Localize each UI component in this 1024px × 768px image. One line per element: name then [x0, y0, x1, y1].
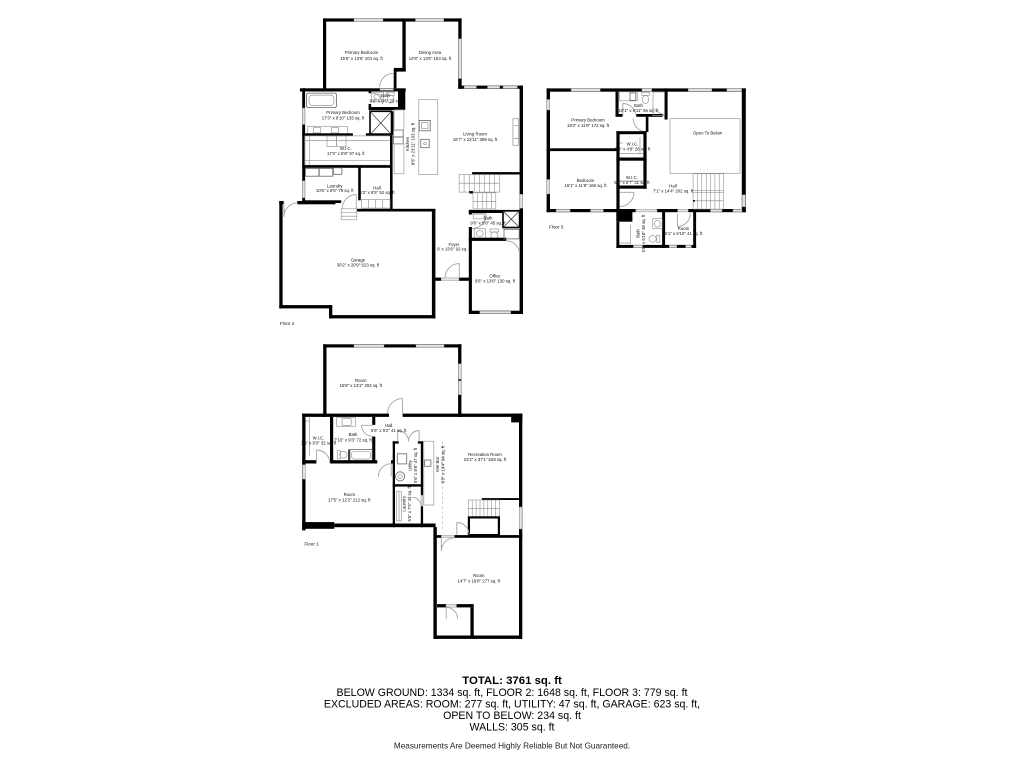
- svg-text:Primary Bedroom: Primary Bedroom: [326, 110, 360, 115]
- svg-text:17'5" x 12'2" 212 sq. ft: 17'5" x 12'2" 212 sq. ft: [328, 497, 371, 502]
- svg-text:9'6" x 13'6" 130 sq. ft: 9'6" x 13'6" 130 sq. ft: [475, 279, 516, 284]
- svg-text:9' x 13'6" 92 sq. ft: 9' x 13'6" 92 sq. ft: [437, 246, 472, 251]
- svg-text:Bath: Bath: [381, 93, 390, 98]
- svg-text:5'6" x 6'10" 38 sq. ft: 5'6" x 6'10" 38 sq. ft: [641, 214, 646, 252]
- svg-text:16'7" x 23'11" 399 sq. ft: 16'7" x 23'11" 399 sq. ft: [453, 137, 498, 142]
- svg-text:15'5" x 13'6" 201 sq. ft: 15'5" x 13'6" 201 sq. ft: [340, 56, 383, 61]
- svg-text:Wet Bar: Wet Bar: [435, 456, 440, 472]
- svg-text:WALLS: 305 sq. ft: WALLS: 305 sq. ft: [470, 721, 555, 733]
- svg-text:Primary Bedroom: Primary Bedroom: [345, 50, 379, 55]
- svg-text:7'10" x 9'3" 72 sq. ft: 7'10" x 9'3" 72 sq. ft: [334, 437, 372, 442]
- svg-text:Floor 1: Floor 1: [304, 541, 319, 546]
- svg-text:19'3" x 11'9" 172 sq. ft: 19'3" x 11'9" 172 sq. ft: [567, 123, 610, 128]
- svg-text:Laundry: Laundry: [401, 495, 406, 511]
- svg-text:Kitchen: Kitchen: [405, 136, 410, 151]
- svg-text:BELOW GROUND: 1334 sq. ft, FLO: BELOW GROUND: 1334 sq. ft, FLOOR 2: 1648…: [337, 687, 688, 699]
- svg-text:23'2" x 37'1" 528 sq. ft: 23'2" x 37'1" 528 sq. ft: [464, 457, 507, 462]
- svg-text:5'6" x 4'9" 26 sq. ft: 5'6" x 4'9" 26 sq. ft: [615, 146, 651, 151]
- svg-text:16'1" x 11'8" 166 sq. ft: 16'1" x 11'8" 166 sq. ft: [564, 183, 607, 188]
- svg-text:15'8" x 13'2" 203 sq. ft: 15'8" x 13'2" 203 sq. ft: [340, 383, 383, 388]
- svg-text:17'3" x 5'8" 97 sq. ft: 17'3" x 5'8" 97 sq. ft: [327, 151, 365, 156]
- svg-text:TOTAL: 3761 sq. ft: TOTAL: 3761 sq. ft: [462, 675, 562, 687]
- svg-text:Floor 2: Floor 2: [280, 321, 295, 326]
- svg-text:5'6" x 5'7" 31 sq. ft: 5'6" x 5'7" 31 sq. ft: [614, 180, 650, 185]
- svg-text:Floor 3: Floor 3: [549, 224, 564, 229]
- svg-text:OPEN TO BELOW: 234 sq. ft: OPEN TO BELOW: 234 sq. ft: [443, 710, 581, 722]
- svg-text:EXCLUDED AREAS: ROOM: 277 sq.: EXCLUDED AREAS: ROOM: 277 sq. ft, UTILIT…: [324, 698, 700, 710]
- svg-text:3'5" x 9'3" 32 sq. ft: 3'5" x 9'3" 32 sq. ft: [301, 440, 337, 445]
- svg-text:Open To Below: Open To Below: [693, 131, 723, 136]
- svg-text:Living Room: Living Room: [463, 132, 487, 137]
- svg-text:6'1" x 6'10" 41 sq. ft: 6'1" x 6'10" 41 sq. ft: [665, 231, 703, 236]
- svg-text:14'7" x 19'8" 277 sq. ft: 14'7" x 19'8" 277 sq. ft: [457, 578, 500, 583]
- svg-text:Bath: Bath: [636, 228, 641, 237]
- svg-text:6'2" x 8'5" 52 sq. ft: 6'2" x 8'5" 52 sq. ft: [359, 190, 395, 195]
- svg-text:6'5" x 13'4" 64 sq. ft: 6'5" x 13'4" 64 sq. ft: [440, 445, 445, 483]
- svg-text:5'6" x 8'6" 47 sq. ft: 5'6" x 8'6" 47 sq. ft: [413, 447, 418, 483]
- svg-text:Utility: Utility: [407, 459, 412, 470]
- svg-text:5'6" x 9'2" 41 sq. ft: 5'6" x 9'2" 41 sq. ft: [371, 428, 407, 433]
- svg-text:17'3" x 8'10" 135 sq. ft: 17'3" x 8'10" 135 sq. ft: [322, 116, 365, 121]
- svg-text:30'2" x 20'9" 623 sq. ft: 30'2" x 20'9" 623 sq. ft: [337, 263, 380, 268]
- svg-text:8'6" x 23'11" 193 sq. ft: 8'6" x 23'11" 193 sq. ft: [410, 122, 415, 165]
- svg-text:10'6" x 8'5" 79 sq. ft: 10'6" x 8'5" 79 sq. ft: [316, 188, 354, 193]
- svg-text:10'1" x 6'11" 56 sq. ft: 10'1" x 6'11" 56 sq. ft: [619, 108, 660, 113]
- svg-text:12'8" x 13'6" 153 sq. ft: 12'8" x 13'6" 153 sq. ft: [409, 56, 452, 61]
- svg-text:5'6" x 7'9" 43 sq. ft: 5'6" x 7'9" 43 sq. ft: [407, 485, 412, 521]
- svg-text:Dining Area: Dining Area: [419, 50, 442, 55]
- svg-text:9'6" x 3'6" 25 sq.: 9'6" x 3'6" 25 sq.: [370, 98, 402, 103]
- svg-text:Primary Bedroom: Primary Bedroom: [571, 118, 605, 123]
- svg-text:9'6" x 5'8" 45 sq. ft: 9'6" x 5'8" 45 sq. ft: [470, 221, 506, 226]
- svg-text:7'1" x 14'4" 202 sq. ft: 7'1" x 14'4" 202 sq. ft: [653, 189, 694, 194]
- svg-text:Measurements Are Deemed Highly: Measurements Are Deemed Highly Reliable …: [394, 742, 630, 751]
